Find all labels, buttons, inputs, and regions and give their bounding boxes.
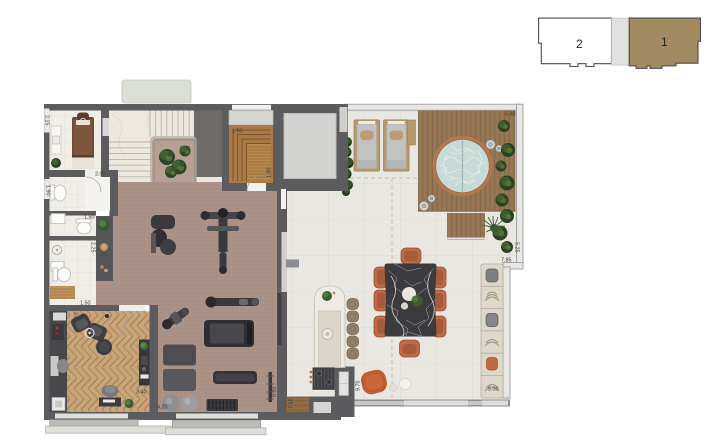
svg-text:2.25: 2.25 <box>44 115 50 126</box>
svg-text:1.50: 1.50 <box>84 215 95 221</box>
svg-text:2: 2 <box>576 37 583 51</box>
svg-text:4.20: 4.20 <box>157 405 168 411</box>
svg-text:1.90: 1.90 <box>45 185 51 196</box>
svg-text:2.25: 2.25 <box>90 242 96 253</box>
svg-text:9.70: 9.70 <box>356 381 362 392</box>
svg-text:1.50: 1.50 <box>232 129 243 135</box>
svg-text:5.30: 5.30 <box>505 112 516 118</box>
svg-text:7.55: 7.55 <box>289 399 295 410</box>
svg-text:2.00: 2.00 <box>95 172 106 178</box>
svg-text:1: 1 <box>661 35 668 49</box>
svg-text:5.25: 5.25 <box>514 242 520 253</box>
svg-text:1.50: 1.50 <box>80 301 91 307</box>
svg-text:2.65: 2.65 <box>73 312 79 323</box>
svg-text:7.85: 7.85 <box>501 258 512 264</box>
svg-text:1.90: 1.90 <box>267 168 273 179</box>
svg-text:8.30: 8.30 <box>272 387 278 398</box>
svg-text:3.40: 3.40 <box>136 390 147 396</box>
svg-text:5.00: 5.00 <box>488 387 499 393</box>
